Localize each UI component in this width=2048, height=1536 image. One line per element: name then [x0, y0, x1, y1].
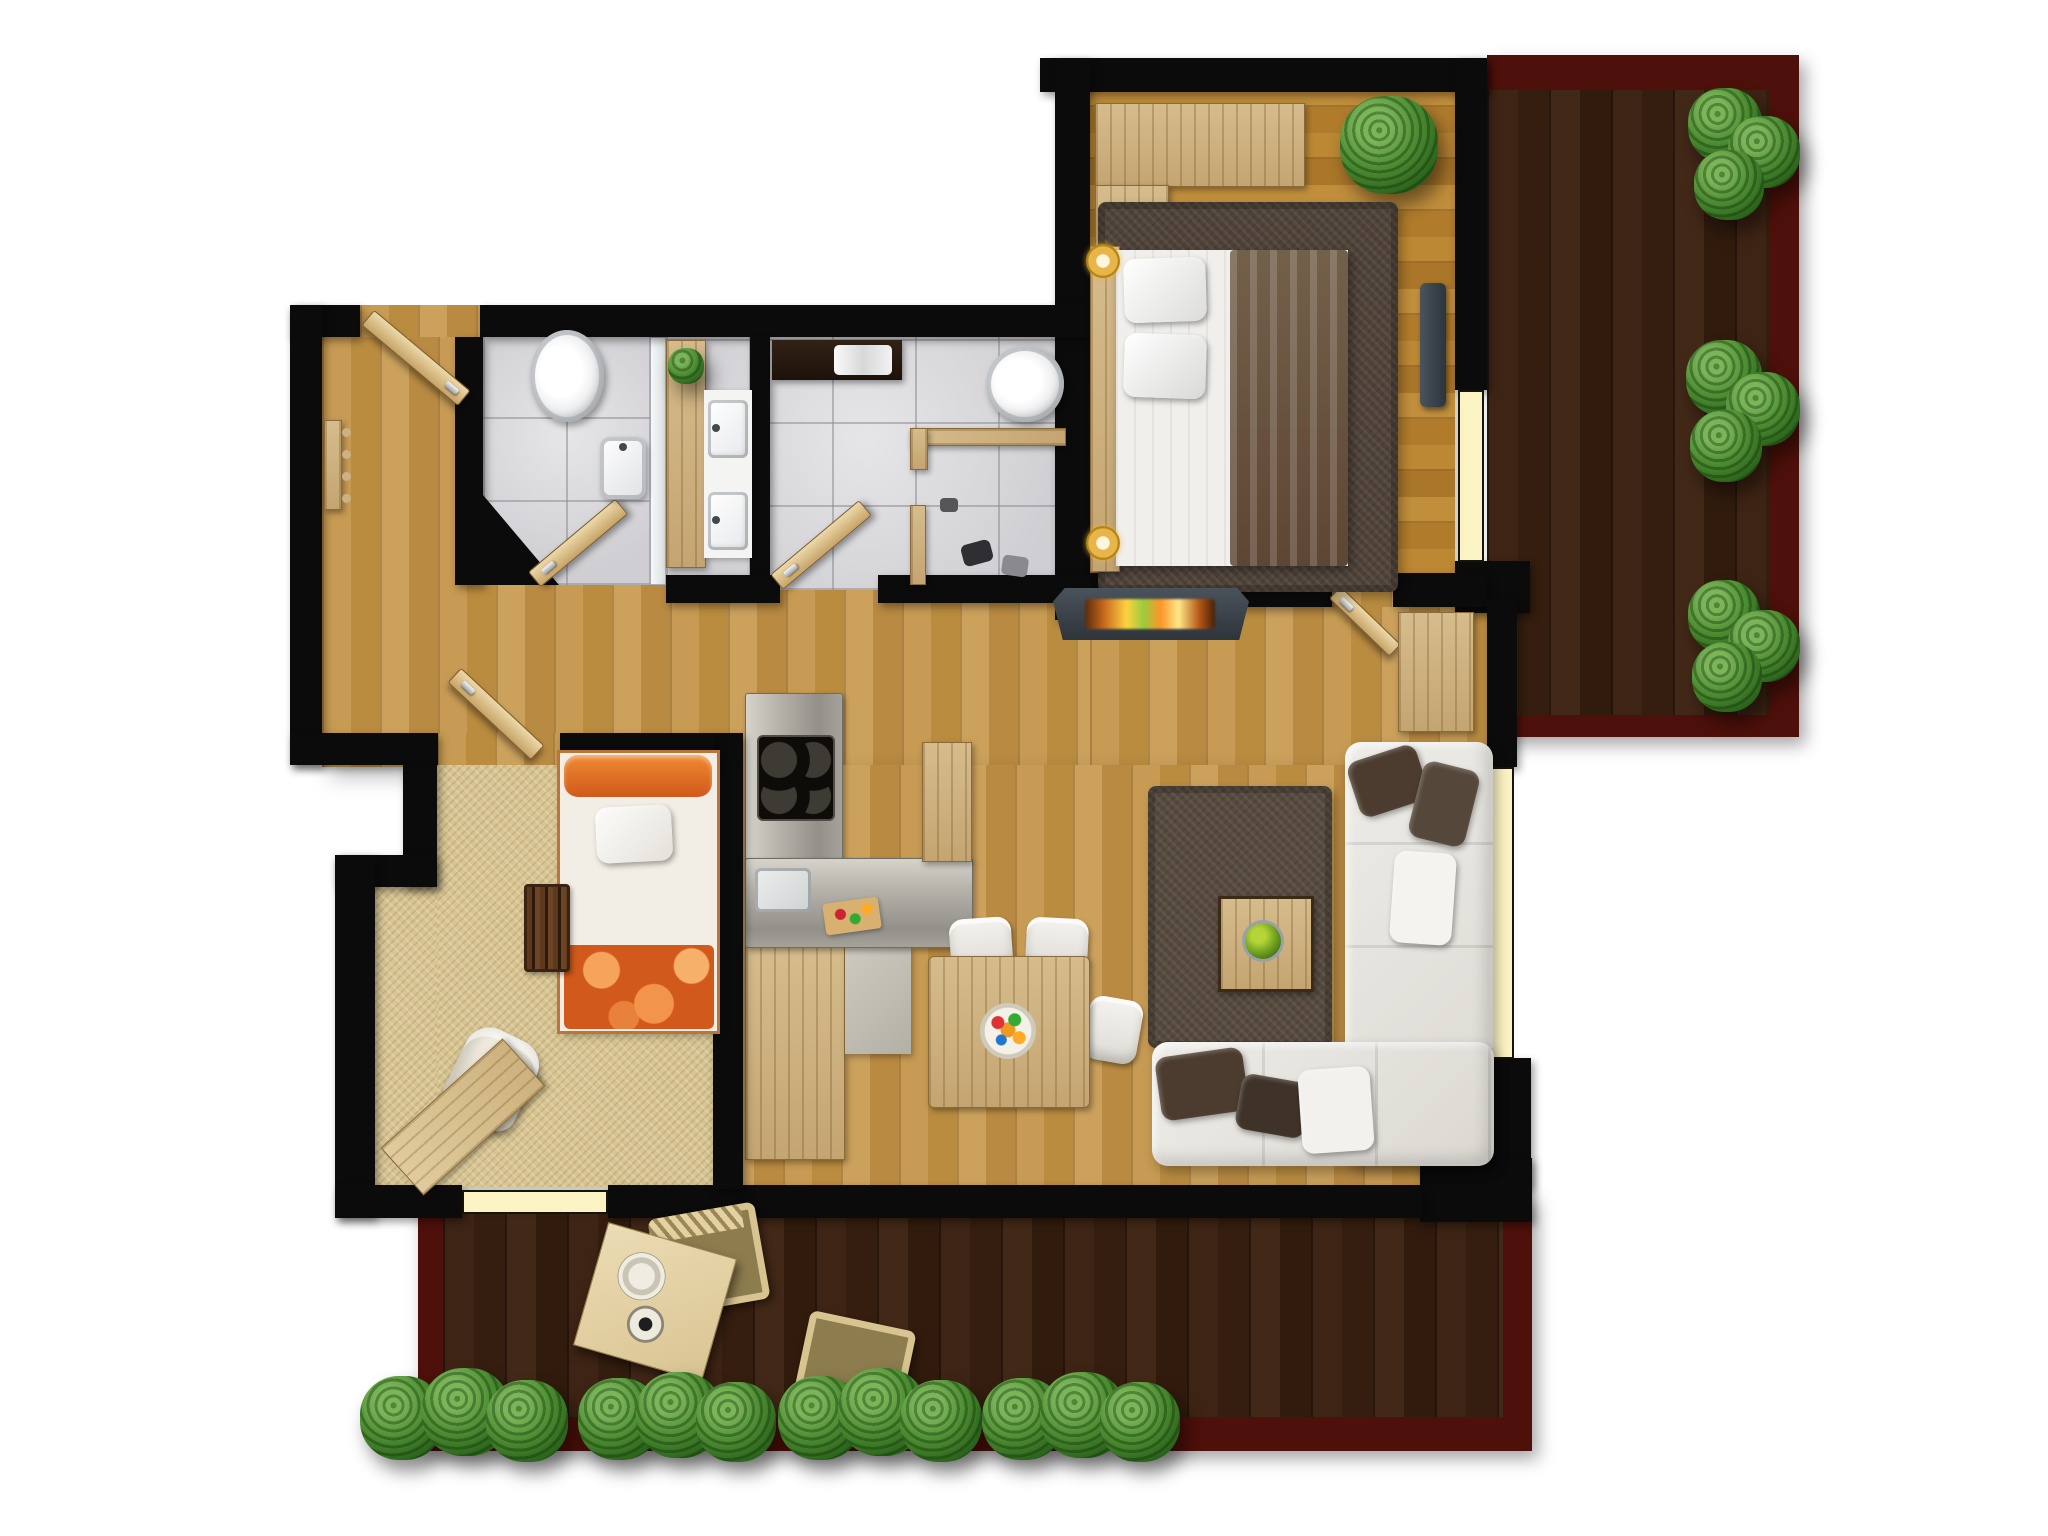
kitchen-tall-cabinet: [922, 742, 972, 862]
wall: [750, 337, 770, 577]
dining-chair: [1081, 994, 1145, 1066]
garden-bush-icon: [1686, 580, 1802, 714]
wall: [1420, 1158, 1532, 1222]
kids-white-pillow: [595, 804, 674, 864]
wall: [335, 1185, 462, 1218]
vanity-sink: [708, 492, 748, 550]
fire-icon: [1085, 599, 1215, 629]
decor-bowl: [1245, 923, 1281, 959]
food-plate: [980, 1003, 1036, 1059]
garden-bush-icon: [578, 1372, 778, 1480]
bed-pillow: [1123, 333, 1207, 400]
coat-peg-icon: [342, 494, 351, 503]
bed-pillow: [1123, 257, 1207, 324]
wall: [1487, 600, 1517, 767]
kids-blanket: [564, 945, 714, 1029]
coat-peg-icon: [342, 472, 351, 481]
towel-rail: [910, 428, 928, 470]
sofa-cushion: [1297, 1066, 1375, 1155]
wall: [1040, 58, 1487, 92]
window-kids: [462, 1190, 608, 1214]
floor-plan: [0, 0, 2048, 1536]
wc-basin: [600, 437, 646, 499]
coat-peg-icon: [342, 428, 351, 437]
wall: [455, 337, 483, 585]
towel-rail: [910, 428, 1066, 446]
window-bedroom: [1458, 390, 1484, 562]
towel-rail: [910, 505, 926, 585]
kitchen-base-cabinets: [745, 946, 845, 1160]
garden-bush-icon: [1686, 340, 1802, 486]
wall: [666, 575, 780, 603]
potted-plant-icon: [1340, 96, 1438, 194]
bath-accessory: [940, 498, 958, 512]
wardrobe: [1095, 103, 1305, 187]
cooktop-icon: [757, 735, 835, 821]
kitchen-sink: [755, 868, 811, 912]
coat-rack: [324, 420, 342, 510]
bath-toilet: [986, 346, 1064, 422]
terrace-cup: [620, 1298, 672, 1350]
wall: [335, 855, 375, 1218]
bedside-lamp-icon: [1086, 244, 1120, 278]
wall: [713, 733, 743, 1189]
tv: [1420, 283, 1446, 407]
bedside-lamp-icon: [1086, 526, 1120, 560]
garden-bush-icon: [778, 1368, 984, 1478]
crib-rail: [524, 884, 570, 972]
shower-glass: [650, 337, 666, 585]
kids-pillow: [564, 755, 712, 797]
sideboard: [1398, 612, 1474, 732]
wc-toilet: [530, 330, 604, 422]
vanity-plant-icon: [668, 348, 704, 384]
wall: [290, 733, 438, 765]
wall: [290, 305, 322, 765]
coat-peg-icon: [342, 450, 351, 459]
sofa-cushion: [1389, 850, 1457, 946]
terrace-plate: [612, 1247, 671, 1306]
garden-bush-icon: [360, 1368, 570, 1478]
doorway-patch-kids: [437, 733, 560, 765]
garden-bush-icon: [1688, 88, 1804, 220]
bath-accessory: [1001, 554, 1030, 577]
wall: [1055, 58, 1090, 620]
wall: [1455, 58, 1487, 390]
wall: [1393, 573, 1487, 607]
garden-bush-icon: [982, 1372, 1182, 1480]
window-living: [1490, 767, 1514, 1059]
vanity-sink: [708, 400, 748, 458]
kitchen-side-unit: [845, 946, 911, 1054]
towel: [834, 345, 892, 375]
bed-blanket: [1230, 250, 1348, 566]
